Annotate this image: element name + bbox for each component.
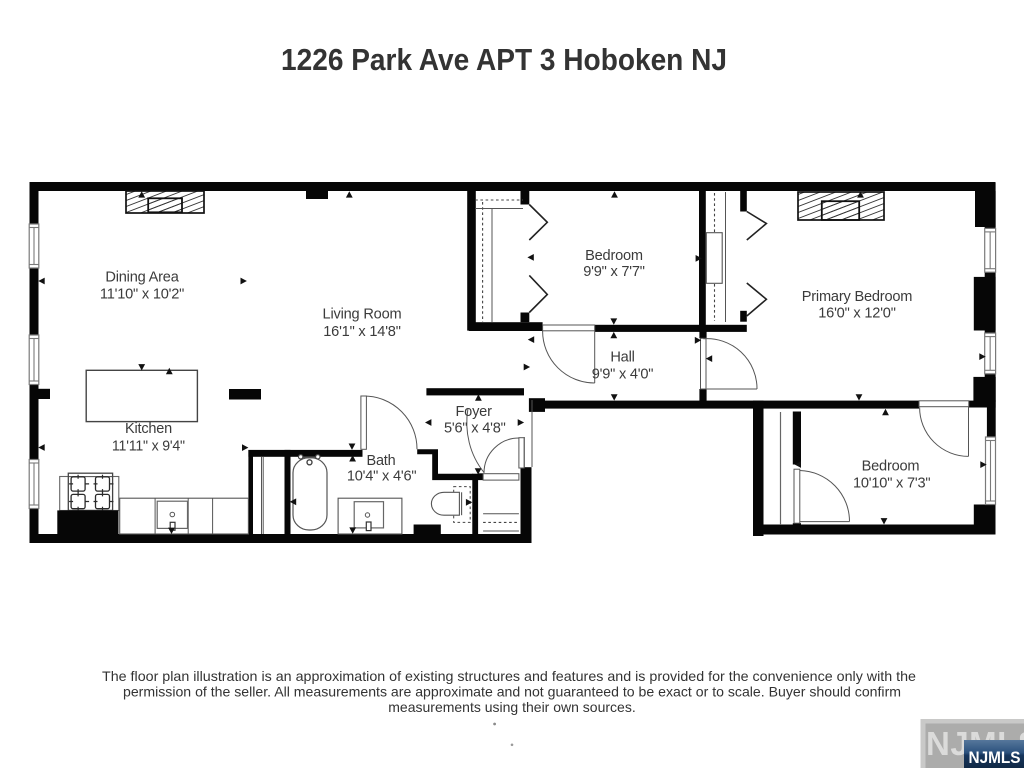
svg-text:11'10" x 10'2": 11'10" x 10'2": [100, 287, 184, 303]
svg-text:Dining Area: Dining Area: [105, 270, 179, 286]
svg-text:16'0" x 12'0": 16'0" x 12'0": [818, 306, 895, 322]
svg-text:5'6" x 4'8": 5'6" x 4'8": [444, 421, 506, 437]
svg-text:measurements using their own s: measurements using their own sources.: [388, 699, 635, 715]
svg-text:1226 Park Ave APT 3 Hoboken NJ: 1226 Park Ave APT 3 Hoboken NJ: [281, 43, 727, 77]
svg-text:NJMLS: NJMLS: [969, 749, 1021, 767]
svg-text:9'9" x 7'7": 9'9" x 7'7": [583, 264, 645, 280]
svg-text:Bath: Bath: [367, 453, 396, 469]
svg-text:Living Room: Living Room: [323, 307, 402, 323]
svg-text:11'11" x 9'4": 11'11" x 9'4": [112, 439, 185, 455]
svg-text:Primary Bedroom: Primary Bedroom: [802, 289, 913, 305]
svg-text:Foyer: Foyer: [455, 404, 492, 420]
svg-text:9'9" x 4'0": 9'9" x 4'0": [592, 367, 654, 383]
svg-text:Bedroom: Bedroom: [585, 248, 643, 264]
svg-text:permission of the seller. All: permission of the seller. All measuremen…: [123, 684, 901, 700]
svg-text:The floor plan illustration is: The floor plan illustration is an approx…: [102, 668, 916, 684]
svg-text:Bedroom: Bedroom: [862, 459, 920, 475]
svg-text:Kitchen: Kitchen: [125, 421, 172, 437]
svg-text:16'1" x 14'8": 16'1" x 14'8": [323, 324, 400, 340]
svg-text:10'10" x 7'3": 10'10" x 7'3": [853, 475, 930, 491]
svg-text:Hall: Hall: [610, 350, 634, 366]
svg-text:10'4" x 4'6": 10'4" x 4'6": [347, 469, 417, 485]
